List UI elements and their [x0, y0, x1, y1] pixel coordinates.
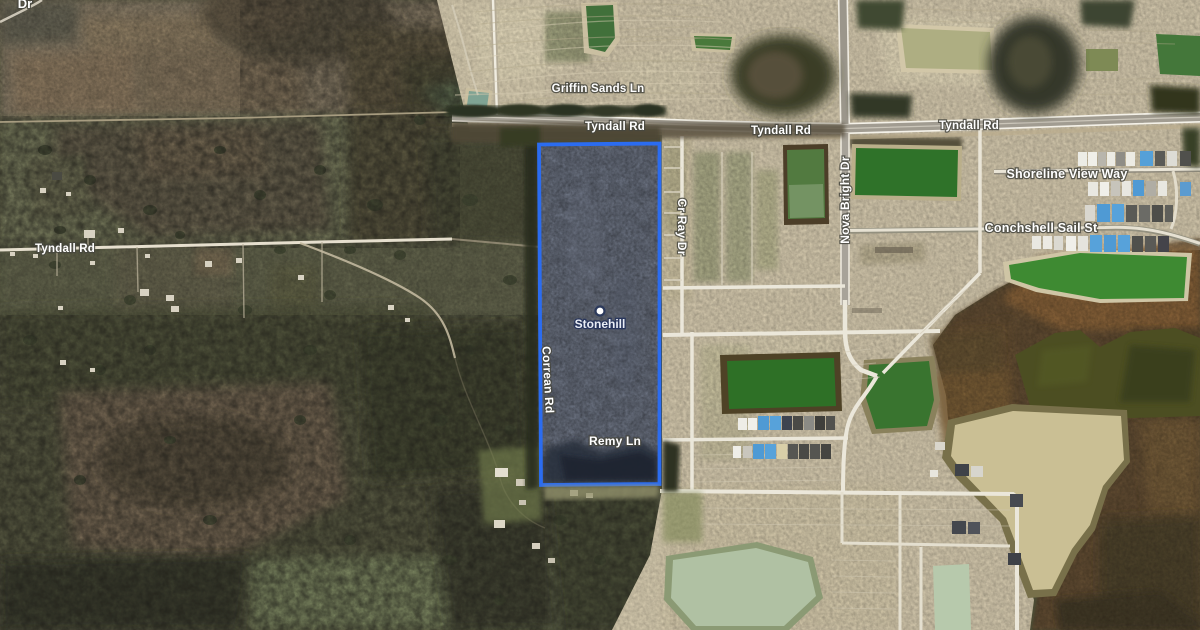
- svg-text:Tyndall Rd: Tyndall Rd: [35, 243, 95, 255]
- svg-text:Nova Bright Dr: Nova Bright Dr: [838, 156, 852, 244]
- svg-text:Tyndall Rd: Tyndall Rd: [751, 125, 811, 137]
- svg-text:Griffin Sands Ln: Griffin Sands Ln: [552, 83, 645, 95]
- svg-text:Stonehill: Stonehill: [575, 317, 626, 331]
- svg-text:Remy Ln: Remy Ln: [589, 434, 641, 448]
- svg-text:Tyndall Rd: Tyndall Rd: [939, 120, 999, 132]
- svg-text:Shoreline View Way: Shoreline View Way: [1006, 167, 1127, 181]
- svg-text:Dr: Dr: [18, 0, 32, 11]
- svg-text:Conchshell Sail St: Conchshell Sail St: [985, 221, 1098, 235]
- svg-text:Tyndall Rd: Tyndall Rd: [585, 121, 645, 133]
- svg-text:Cr Ray Dr: Cr Ray Dr: [675, 198, 689, 255]
